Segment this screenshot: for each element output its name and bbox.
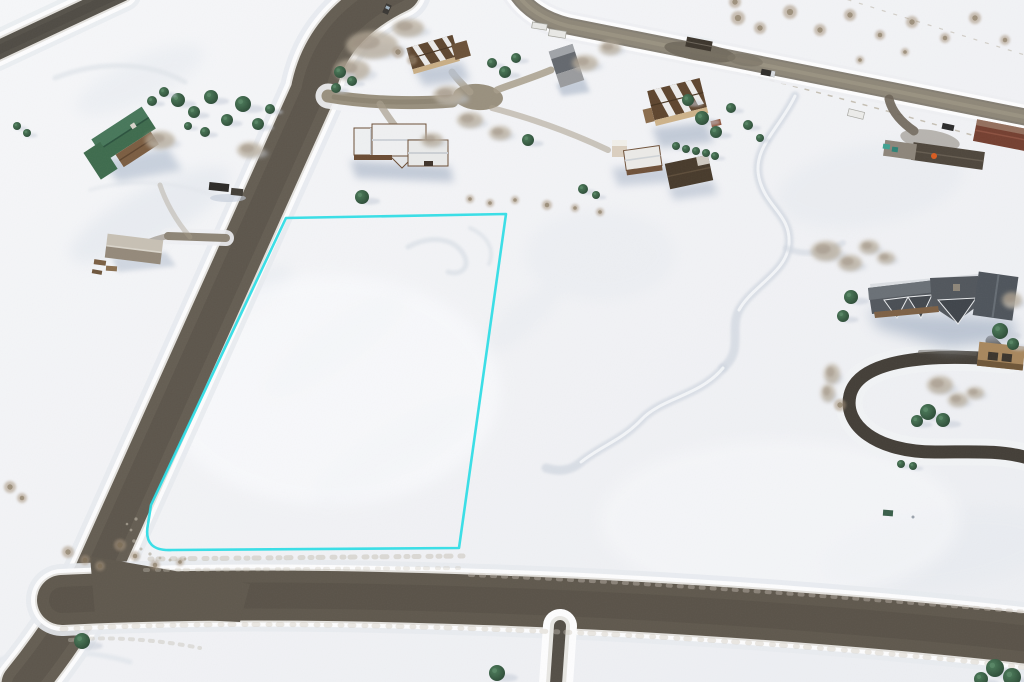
conifer-tree bbox=[672, 142, 680, 150]
brush-clump-core bbox=[909, 19, 914, 24]
conifer-tree bbox=[702, 149, 710, 157]
conifer-tree bbox=[756, 134, 764, 142]
conifer-highlight bbox=[186, 124, 188, 126]
conifer-highlight bbox=[694, 149, 696, 151]
brush-clump-core bbox=[153, 563, 158, 568]
aspen-clump-core bbox=[823, 387, 830, 396]
conifer-highlight bbox=[684, 147, 686, 149]
conifer-highlight bbox=[15, 124, 17, 126]
conifer-tree bbox=[522, 134, 534, 146]
garage-door bbox=[424, 161, 433, 166]
conifer-highlight bbox=[712, 128, 716, 132]
conifer-highlight bbox=[911, 464, 913, 466]
conifer-tree bbox=[726, 103, 736, 113]
aspen-clump-core bbox=[576, 57, 589, 65]
brush-clump-core bbox=[20, 496, 25, 501]
conifer-highlight bbox=[713, 154, 715, 156]
conifer-highlight bbox=[489, 60, 492, 63]
brush-clump-core bbox=[573, 206, 577, 210]
conifer-highlight bbox=[202, 129, 205, 132]
conifer-tree bbox=[499, 66, 511, 78]
brush-clump-core bbox=[847, 12, 852, 17]
brush-clump-core bbox=[757, 25, 762, 30]
conifer-tree bbox=[334, 66, 346, 78]
conifer-highlight bbox=[492, 668, 497, 673]
conifer-highlight bbox=[899, 462, 901, 464]
conifer-highlight bbox=[190, 108, 194, 112]
conifer-tree bbox=[710, 126, 722, 138]
aspen-clump-core bbox=[931, 379, 944, 388]
conifer-highlight bbox=[684, 96, 688, 100]
conifer-highlight bbox=[1009, 340, 1013, 344]
conifer-highlight bbox=[254, 120, 258, 124]
aspen-clump-core bbox=[438, 89, 453, 98]
conifer-tree bbox=[184, 122, 192, 130]
brush-clump-core bbox=[513, 198, 517, 202]
brush-clump-core bbox=[468, 197, 472, 201]
brush-clump-core bbox=[410, 58, 415, 63]
aspen-clump-core bbox=[816, 244, 831, 254]
brush-clump-core bbox=[133, 554, 138, 559]
brush-clump-core bbox=[598, 210, 602, 214]
aspen-clump-core bbox=[397, 22, 413, 31]
conifer-highlight bbox=[745, 122, 748, 125]
brush-clump-core bbox=[903, 50, 907, 54]
conifer-tree bbox=[682, 94, 694, 106]
trailer-left bbox=[231, 188, 244, 196]
conifer-highlight bbox=[524, 136, 528, 140]
conifer-tree bbox=[920, 404, 936, 420]
conifer-tree bbox=[897, 460, 905, 468]
aspen-clump-core bbox=[424, 135, 435, 142]
conifer-tree bbox=[487, 58, 497, 68]
conifer-tree bbox=[909, 462, 917, 470]
conifer-highlight bbox=[847, 293, 851, 297]
brush-clump-core bbox=[858, 58, 862, 62]
brush-clump-core bbox=[83, 558, 88, 563]
conifer-highlight bbox=[267, 106, 270, 109]
garage-door bbox=[1001, 353, 1012, 362]
aerial-photo-canvas bbox=[0, 0, 1024, 682]
conifer-tree bbox=[837, 310, 849, 322]
utility-box bbox=[883, 510, 893, 517]
teal-bin bbox=[883, 144, 891, 150]
orange-equipment bbox=[931, 153, 937, 159]
snow-speck bbox=[912, 516, 915, 519]
conifer-tree bbox=[159, 87, 169, 97]
brush-clump-core bbox=[837, 402, 842, 407]
aspen-clump-core bbox=[969, 389, 978, 395]
conifer-tree bbox=[331, 83, 341, 93]
brush-clump-core bbox=[488, 201, 492, 205]
brush-clump-core bbox=[65, 549, 70, 554]
conifer-highlight bbox=[839, 312, 843, 316]
conifer-tree bbox=[204, 90, 218, 104]
conifer-highlight bbox=[77, 636, 82, 641]
brush-clump-core bbox=[787, 9, 793, 15]
conifer-tree bbox=[743, 120, 753, 130]
aspen-clump-core bbox=[842, 257, 854, 265]
brush-clump-core bbox=[545, 203, 550, 208]
conifer-highlight bbox=[594, 193, 596, 195]
conifer-tree bbox=[992, 323, 1008, 339]
conifer-tree bbox=[592, 191, 600, 199]
conifer-highlight bbox=[207, 93, 211, 97]
conifer-tree bbox=[347, 76, 357, 86]
conifer-tree bbox=[188, 106, 200, 118]
conifer-tree bbox=[23, 129, 31, 137]
brush-clump-core bbox=[7, 484, 12, 489]
south-driveway-surface bbox=[556, 626, 560, 682]
conifer-tree bbox=[74, 633, 90, 649]
aspen-clump-core bbox=[880, 254, 889, 260]
aspen-clump-core bbox=[354, 35, 380, 49]
brush-clump-core bbox=[395, 49, 400, 54]
garage-door bbox=[988, 352, 999, 361]
conifer-highlight bbox=[995, 326, 1000, 331]
conifer-highlight bbox=[674, 144, 676, 146]
conifer-highlight bbox=[704, 151, 706, 153]
brush-clump-core bbox=[878, 33, 883, 38]
conifer-highlight bbox=[728, 105, 731, 108]
conifer-highlight bbox=[149, 98, 152, 101]
conifer-highlight bbox=[939, 416, 943, 420]
conifer-tree bbox=[986, 659, 1004, 677]
conifer-highlight bbox=[501, 68, 505, 72]
conifer-tree bbox=[355, 190, 369, 204]
conifer-tree bbox=[936, 413, 950, 427]
conifer-tree bbox=[200, 127, 210, 137]
conifer-tree bbox=[844, 290, 858, 304]
aspen-clump-core bbox=[492, 128, 503, 135]
aspen-clump-core bbox=[241, 144, 254, 152]
conifer-tree bbox=[489, 665, 505, 681]
conifer-tree bbox=[147, 96, 157, 106]
conifer-highlight bbox=[698, 114, 702, 118]
conifer-highlight bbox=[336, 68, 340, 72]
brush-clump-core bbox=[117, 542, 122, 547]
conifer-tree bbox=[578, 184, 588, 194]
brush-clump-core bbox=[1003, 38, 1008, 43]
conifer-tree bbox=[265, 104, 275, 114]
conifer-highlight bbox=[513, 55, 516, 58]
aerial-photo bbox=[0, 0, 1024, 682]
brush-clump-core bbox=[943, 36, 948, 41]
conifer-tree bbox=[682, 145, 690, 153]
brush-clump-core bbox=[735, 15, 741, 21]
aspen-clump-core bbox=[951, 395, 961, 402]
aspen-clump-core bbox=[150, 134, 165, 143]
conifer-tree bbox=[1007, 338, 1019, 350]
conifer-highlight bbox=[580, 186, 583, 189]
aspen-clump-core bbox=[826, 367, 834, 377]
conifer-tree bbox=[711, 152, 719, 160]
conifer-highlight bbox=[25, 131, 27, 133]
conifer-highlight bbox=[223, 116, 227, 120]
conifer-highlight bbox=[333, 85, 336, 88]
aspen-clump-core bbox=[461, 114, 474, 122]
conifer-highlight bbox=[358, 193, 362, 197]
conifer-tree bbox=[221, 114, 233, 126]
brush-clump-core bbox=[98, 564, 103, 569]
conifer-highlight bbox=[161, 89, 164, 92]
conifer-highlight bbox=[923, 407, 928, 412]
mansion-chimney bbox=[953, 284, 960, 291]
conifer-tree bbox=[692, 147, 700, 155]
conifer-highlight bbox=[977, 675, 981, 679]
conifer-tree bbox=[235, 96, 251, 112]
conifer-tree bbox=[911, 415, 923, 427]
aspen-clump-core bbox=[1005, 294, 1015, 302]
south-driveway bbox=[556, 626, 560, 682]
brush-clump-core bbox=[817, 27, 822, 32]
conifer-highlight bbox=[913, 417, 917, 421]
conifer-tree bbox=[511, 53, 521, 63]
conifer-highlight bbox=[349, 78, 352, 81]
brush-clump-core bbox=[178, 560, 182, 564]
conifer-tree bbox=[252, 118, 264, 130]
conifer-tree bbox=[695, 111, 709, 125]
brush-clump-core bbox=[972, 15, 977, 20]
conifer-highlight bbox=[238, 99, 243, 104]
aspen-clump-core bbox=[602, 43, 613, 50]
aspen-clump-core bbox=[862, 242, 872, 249]
conifer-highlight bbox=[758, 136, 760, 138]
conifer-tree bbox=[13, 122, 21, 130]
teal-bin bbox=[892, 147, 899, 153]
conifer-highlight bbox=[990, 663, 995, 668]
conifer-highlight bbox=[1007, 672, 1012, 677]
